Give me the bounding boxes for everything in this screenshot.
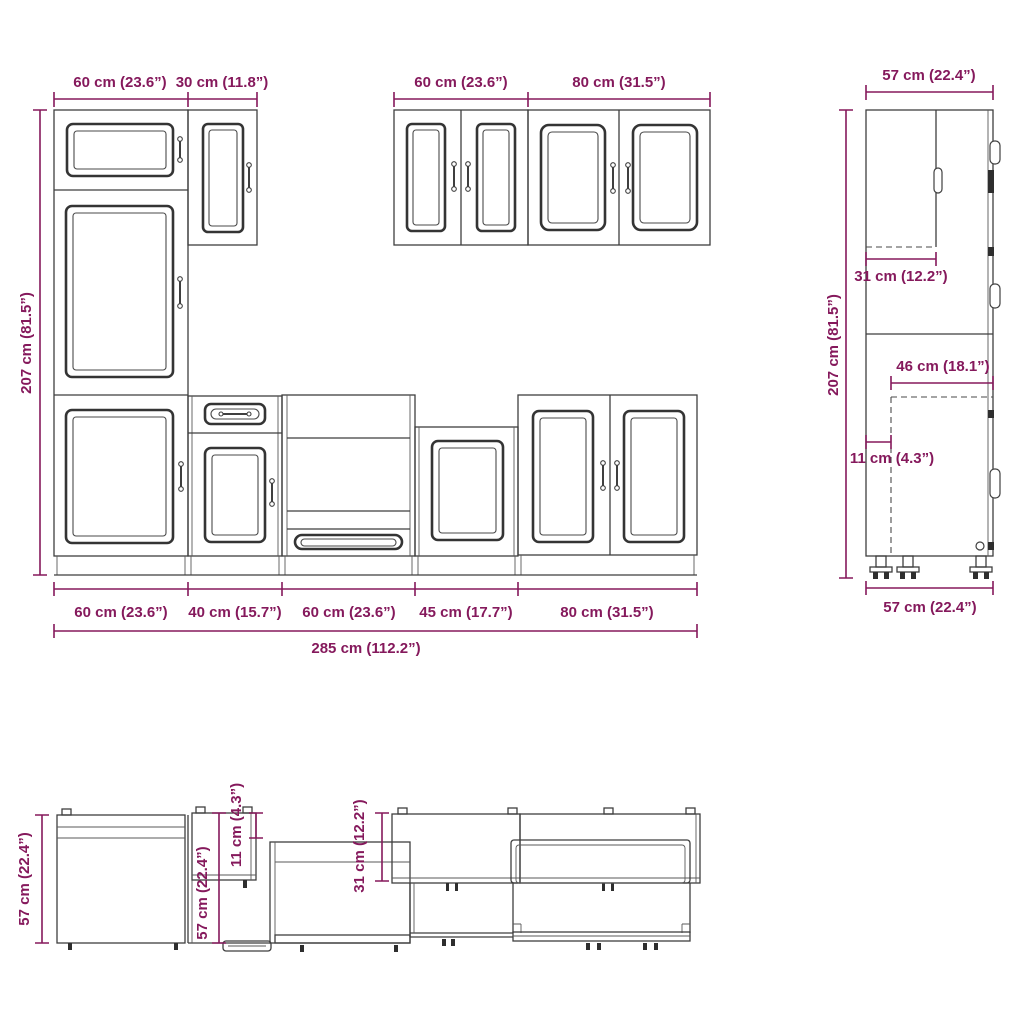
side-cam-lock (976, 542, 984, 550)
front-tall-cabinet (54, 110, 188, 556)
foot (897, 556, 919, 579)
dim-side-wall-depth: 31 cm (12.2”) (854, 252, 947, 285)
side-door-handle (990, 141, 1000, 164)
foot (870, 556, 892, 579)
side-hinge-mark (988, 247, 994, 256)
dim-plan-depth-mid: 57 cm (22.4”) (194, 813, 226, 943)
dim-label-side-31: 31 cm (12.2”) (854, 268, 947, 285)
door-handle (615, 461, 620, 491)
side-view: 57 cm (22.4”) 207 cm (81.5”) 31 cm (12.2… (825, 67, 1000, 616)
side-wall-door-handle (934, 168, 942, 193)
dim-side-offset: 11 cm (4.3”) (850, 435, 934, 467)
cabinet-drawing-canvas: 60 cm (23.6”) 30 cm (11.8”) 60 cm (23.6”… (0, 0, 1024, 1024)
drawer-handle (219, 412, 251, 416)
dim-label-side-height: 207 cm (81.5”) (825, 294, 842, 396)
front-wall-cabinet-80 (528, 110, 710, 245)
door-handle (270, 479, 275, 507)
dim-plan-offset: 11 cm (4.3”) (228, 783, 263, 867)
foot (970, 556, 992, 579)
front-oven-cabinet-60 (282, 395, 415, 556)
dim-label-total-width: 285 cm (112.2”) (311, 640, 420, 657)
dim-label-side-46: 46 cm (18.1”) (896, 358, 989, 375)
dim-label-front-80-top: 80 cm (31.5”) (572, 74, 665, 91)
dim-label-plan-31: 31 cm (12.2”) (351, 799, 368, 892)
dim-label-front-60-left: 60 cm (23.6”) (73, 74, 166, 91)
dim-label-plan-57-left: 57 cm (22.4”) (16, 832, 33, 925)
plan-oven-cabinet-60 (270, 842, 410, 952)
side-hinge-mark (988, 542, 994, 550)
dim-label-bottom-40: 40 cm (15.7”) (188, 604, 281, 621)
dim-label-bottom-60-mid: 60 cm (23.6”) (302, 604, 395, 621)
dim-label-side-width-bottom: 57 cm (22.4”) (883, 599, 976, 616)
door-handle (179, 462, 184, 492)
door-handle (611, 163, 616, 194)
side-door-handle (990, 469, 1000, 498)
dim-side-top: 57 cm (22.4”) (866, 67, 993, 100)
dim-front-bottom: 60 cm (23.6”) 40 cm (15.7”) 60 cm (23.6”… (54, 582, 697, 621)
front-plinth (54, 555, 697, 575)
dim-front-top-left: 60 cm (23.6”) 30 cm (11.8”) (54, 74, 268, 107)
door-handle (178, 277, 183, 309)
door-handle (178, 137, 183, 163)
front-base-cabinet-40 (188, 396, 282, 556)
door-handle (247, 163, 252, 193)
dim-label-front-60-mid: 60 cm (23.6”) (414, 74, 507, 91)
dim-label-plan-57-mid: 57 cm (22.4”) (194, 846, 211, 939)
dim-plan-depth-left: 57 cm (22.4”) (16, 815, 49, 943)
dim-front-top-mid: 60 cm (23.6”) 80 cm (31.5”) (394, 74, 710, 107)
dim-label-bottom-80: 80 cm (31.5”) (560, 604, 653, 621)
technical-drawing-page: 60 cm (23.6”) 30 cm (11.8”) 60 cm (23.6”… (0, 0, 1024, 1024)
door-handle (626, 163, 631, 194)
dim-label-front-height: 207 cm (81.5”) (18, 292, 35, 394)
door-handle (466, 162, 471, 192)
dim-label-side-width-top: 57 cm (22.4”) (882, 67, 975, 84)
front-wall-cabinet-30 (188, 110, 257, 245)
side-cabinet-body (866, 110, 1000, 556)
front-wall-cabinet-60 (394, 110, 528, 245)
plan-view: 57 cm (22.4”) 57 cm (22.4”) 11 cm (4.3”)… (16, 783, 700, 952)
dim-front-total: 285 cm (112.2”) (54, 624, 697, 657)
side-hinge-mark (988, 170, 994, 193)
dim-side-bottom: 57 cm (22.4”) (866, 581, 993, 616)
dim-label-front-30: 30 cm (11.8”) (176, 74, 269, 91)
dim-label-plan-11: 11 cm (4.3”) (228, 783, 245, 867)
plan-base-cabinet-45 (410, 883, 513, 946)
side-hinge-mark (988, 410, 994, 418)
plan-wall-cabinet-60 (392, 814, 520, 891)
dim-label-bottom-45: 45 cm (17.7”) (419, 604, 512, 621)
door-handle (601, 461, 606, 491)
plan-base-cabinet-80 (511, 840, 690, 950)
side-door-handle (990, 284, 1000, 308)
dim-side-height: 207 cm (81.5”) (825, 110, 853, 578)
front-view: 60 cm (23.6”) 30 cm (11.8”) 60 cm (23.6”… (18, 74, 710, 657)
side-feet (870, 556, 992, 579)
dim-label-side-11: 11 cm (4.3”) (850, 450, 934, 467)
dim-plan-wall-depth: 31 cm (12.2”) (351, 799, 389, 892)
front-base-cabinet-80 (518, 395, 697, 555)
plan-tall-cabinet (57, 815, 185, 950)
plan-wall-cabinet-80 (520, 814, 700, 891)
dim-label-bottom-60-left: 60 cm (23.6”) (74, 604, 167, 621)
dim-side-interior-depth: 46 cm (18.1”) (891, 358, 993, 390)
dim-front-height: 207 cm (81.5”) (18, 110, 47, 575)
door-handle (452, 162, 457, 192)
front-base-cabinet-45 (415, 427, 518, 556)
